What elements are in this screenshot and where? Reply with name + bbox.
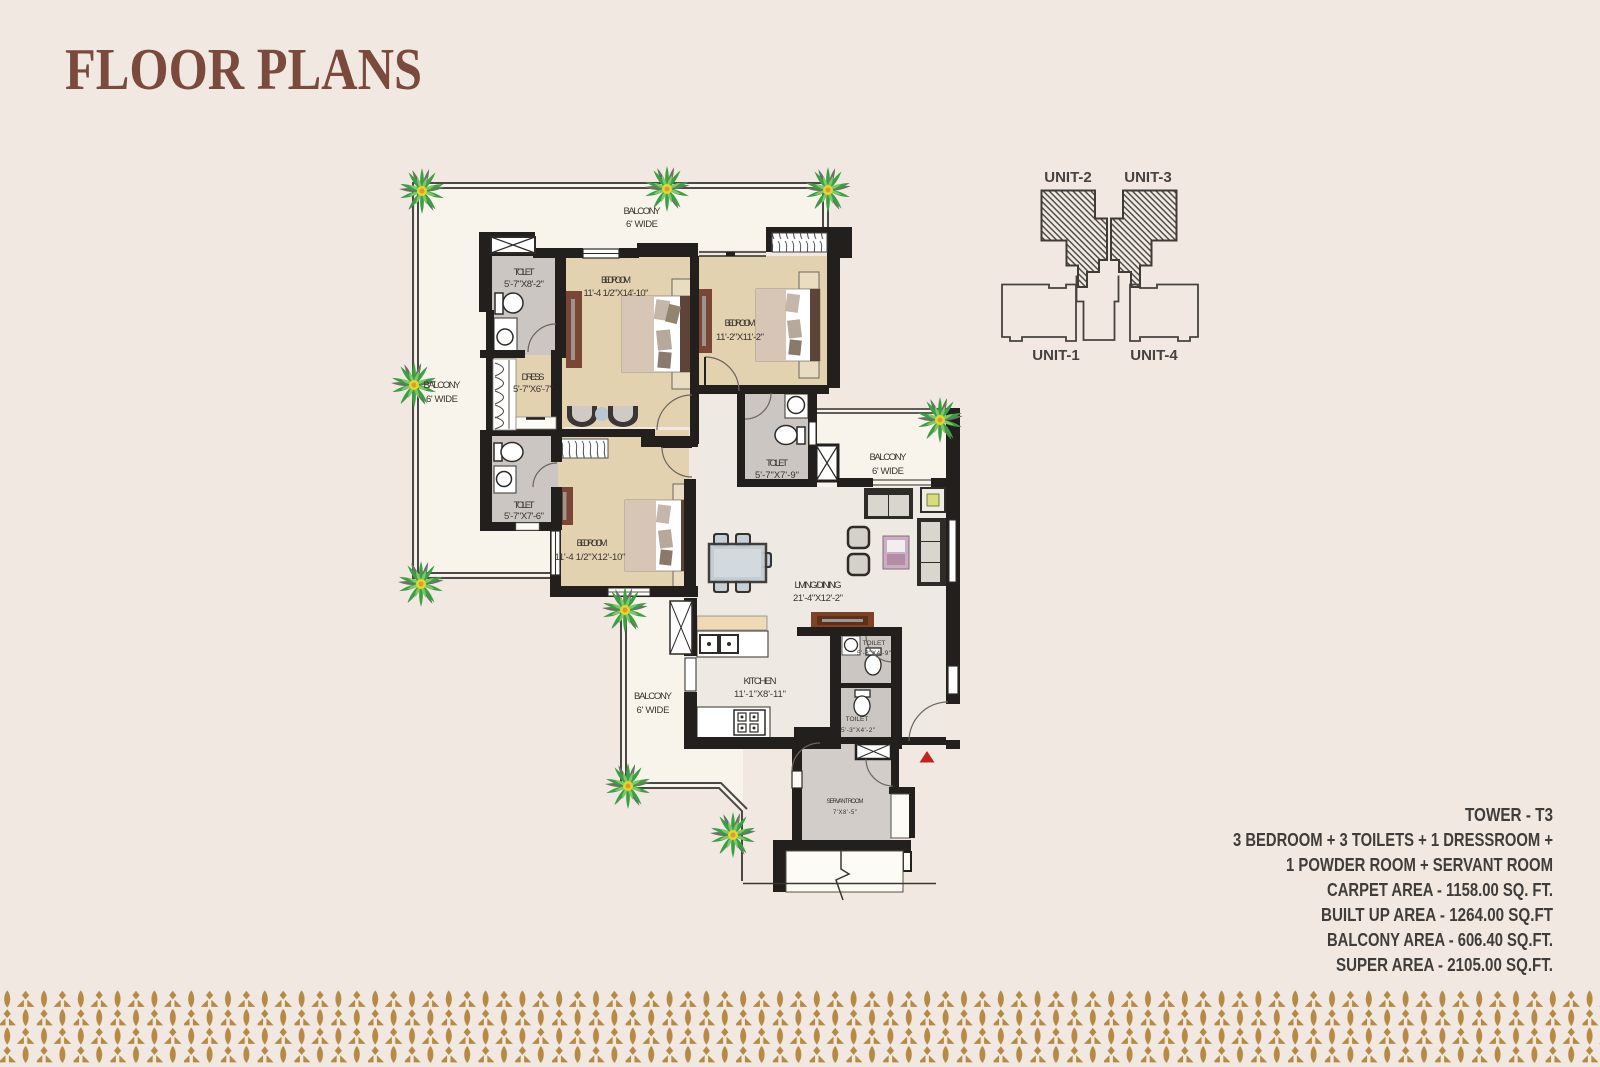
svg-text:1 POWDER ROOM + SERVANT ROOM: 1 POWDER ROOM + SERVANT ROOM <box>1286 855 1553 875</box>
svg-text:TOILET: TOILET <box>514 267 535 278</box>
svg-text:BEDROOM: BEDROOM <box>577 538 608 549</box>
svg-text:BALCONY: BALCONY <box>870 452 908 463</box>
svg-text:3 BEDROOM + 3 TOILETS + 1 DRES: 3 BEDROOM + 3 TOILETS + 1 DRESSROOM + <box>1233 830 1553 850</box>
svg-text:5'-3"X4'-9": 5'-3"X4'-9" <box>857 650 892 657</box>
svg-text:TOILET: TOILET <box>846 716 869 723</box>
svg-text:BALCONY: BALCONY <box>634 691 673 702</box>
svg-text:5'-7"X7'-9": 5'-7"X7'-9" <box>755 470 799 481</box>
svg-text:BUILT UP AREA - 1264.00 SQ.FT: BUILT UP AREA - 1264.00 SQ.FT <box>1321 905 1553 925</box>
svg-text:SERVANT ROOM: SERVANT ROOM <box>827 799 864 805</box>
svg-text:11'-2"X11'-2": 11'-2"X11'-2" <box>716 332 764 343</box>
svg-text:BALCONY: BALCONY <box>624 206 662 217</box>
svg-text:6' WIDE: 6' WIDE <box>637 705 670 716</box>
svg-text:UNIT-1: UNIT-1 <box>1032 347 1080 364</box>
svg-text:BEDROOM: BEDROOM <box>601 275 631 286</box>
svg-text:5'-7"X6'-7": 5'-7"X6'-7" <box>513 384 553 395</box>
svg-text:21'-4"X12'-2": 21'-4"X12'-2" <box>793 593 843 604</box>
svg-text:UNIT-4: UNIT-4 <box>1130 347 1178 364</box>
svg-text:UNIT-3: UNIT-3 <box>1124 169 1172 186</box>
svg-text:6' WIDE: 6' WIDE <box>626 219 658 230</box>
svg-text:11'-4 1/2"X12'-10": 11'-4 1/2"X12'-10" <box>555 552 626 563</box>
svg-text:TOILET: TOILET <box>514 500 535 511</box>
svg-text:TOWER - T3: TOWER - T3 <box>1465 805 1553 825</box>
svg-text:TOILET: TOILET <box>766 458 788 469</box>
svg-text:5'-7"X8'-2": 5'-7"X8'-2" <box>504 279 544 290</box>
svg-text:6' WIDE: 6' WIDE <box>872 466 904 477</box>
svg-text:KITCHEN: KITCHEN <box>744 676 777 687</box>
svg-text:5'-7"X7'-6": 5'-7"X7'-6" <box>504 511 544 522</box>
svg-text:DRESS: DRESS <box>522 372 545 383</box>
svg-text:7'X8'-5": 7'X8'-5" <box>833 810 857 816</box>
svg-text:BALCONY: BALCONY <box>424 380 462 391</box>
svg-text:LIVING/DINING: LIVING/DINING <box>795 580 842 591</box>
svg-text:6' WIDE: 6' WIDE <box>426 394 458 405</box>
svg-text:SUPER AREA - 2105.00 SQ.FT.: SUPER AREA - 2105.00 SQ.FT. <box>1336 955 1553 975</box>
svg-text:FLOOR PLANS: FLOOR PLANS <box>65 36 422 102</box>
svg-text:BALCONY AREA - 606.40 SQ.FT.: BALCONY AREA - 606.40 SQ.FT. <box>1327 930 1553 950</box>
svg-text:UNIT-2: UNIT-2 <box>1044 169 1092 186</box>
svg-text:BEDROOM: BEDROOM <box>725 318 756 329</box>
svg-text:CARPET AREA - 1158.00 SQ. FT.: CARPET AREA - 1158.00 SQ. FT. <box>1327 880 1553 900</box>
svg-text:11'-4 1/2"X14'-10": 11'-4 1/2"X14'-10" <box>584 288 649 299</box>
svg-text:5'-3"X4'-2": 5'-3"X4'-2" <box>841 727 876 734</box>
svg-text:TOILET: TOILET <box>863 640 886 647</box>
svg-text:11'-1"X8'-11": 11'-1"X8'-11" <box>734 689 786 700</box>
